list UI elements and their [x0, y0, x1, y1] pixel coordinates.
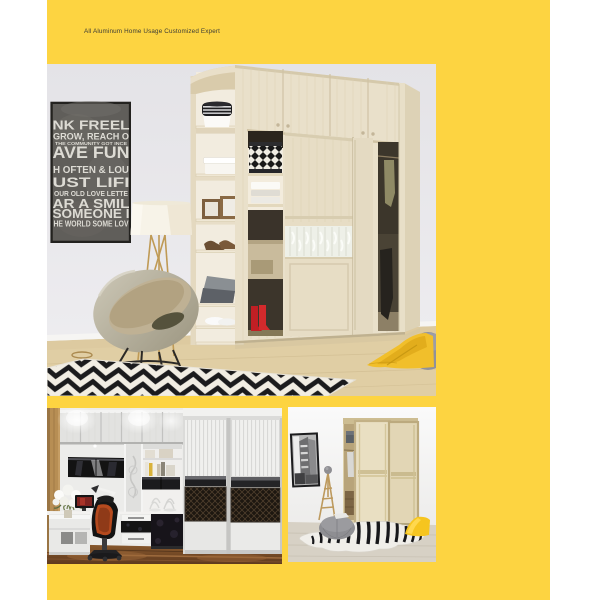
- svg-text:AVE FUN: AVE FUN: [53, 144, 130, 162]
- svg-text:NK FREEL: NK FREEL: [53, 118, 130, 133]
- svg-text:UST LIFI: UST LIFI: [53, 174, 130, 190]
- svg-text:GROW, REACH O: GROW, REACH O: [53, 132, 129, 142]
- svg-text:HE WORLD SOME LOV: HE WORLD SOME LOV: [54, 220, 130, 229]
